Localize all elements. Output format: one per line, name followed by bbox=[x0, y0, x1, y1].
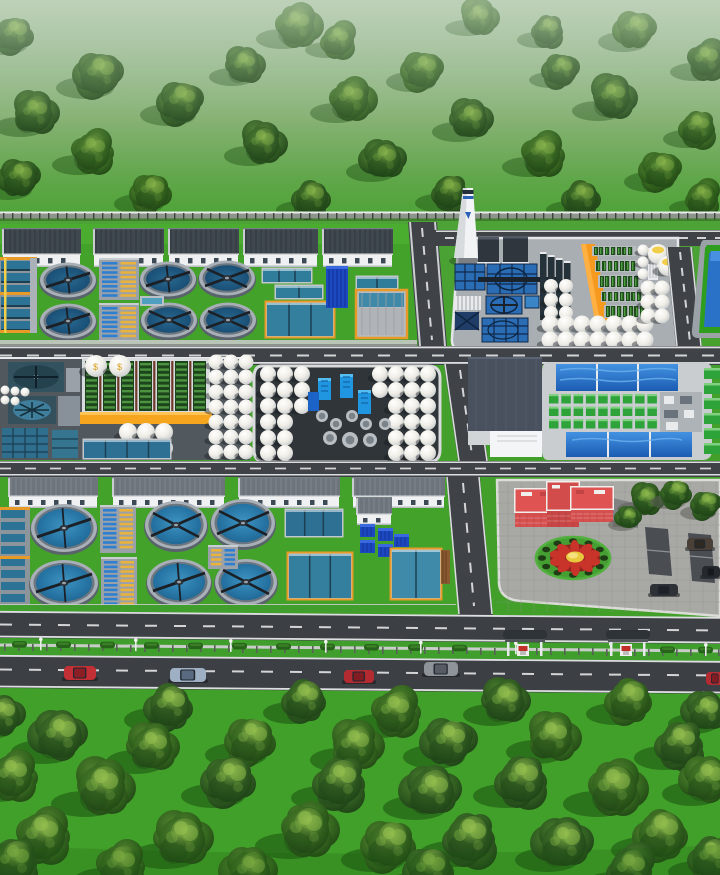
svg-text:$: $ bbox=[117, 362, 122, 372]
svg-text:$: $ bbox=[93, 362, 98, 372]
